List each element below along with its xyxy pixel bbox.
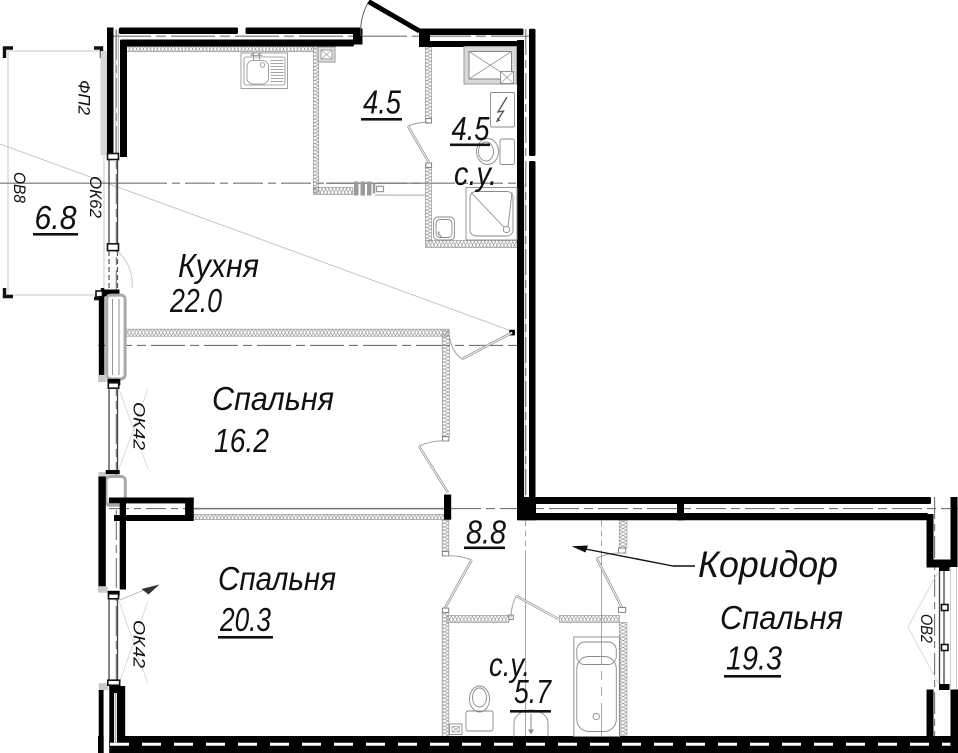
svg-text:6.8: 6.8: [35, 199, 78, 236]
svg-text:4.5: 4.5: [363, 84, 402, 121]
svg-text:Кухня: Кухня: [178, 247, 259, 284]
svg-text:8.8: 8.8: [466, 514, 507, 551]
svg-text:22.0: 22.0: [169, 282, 222, 319]
svg-text:ОВ2: ОВ2: [917, 614, 936, 643]
svg-text:ОК62: ОК62: [86, 176, 105, 219]
svg-text:Спальня: Спальня: [720, 599, 843, 636]
svg-text:16.2: 16.2: [214, 422, 269, 459]
svg-text:ОК42: ОК42: [130, 402, 149, 451]
svg-text:4.5: 4.5: [452, 110, 491, 147]
svg-text:ОК42: ОК42: [130, 620, 149, 669]
svg-text:20.3: 20.3: [219, 601, 271, 638]
svg-text:ФП2: ФП2: [75, 80, 94, 116]
svg-text:5.7: 5.7: [514, 673, 552, 710]
svg-text:Спальня: Спальня: [218, 560, 336, 597]
svg-text:с.у.: с.у.: [454, 155, 497, 192]
svg-text:Коридор: Коридор: [698, 544, 838, 585]
svg-text:Спальня: Спальня: [212, 380, 334, 417]
svg-text:19.3: 19.3: [726, 640, 783, 677]
svg-text:ОВ8: ОВ8: [10, 172, 29, 203]
